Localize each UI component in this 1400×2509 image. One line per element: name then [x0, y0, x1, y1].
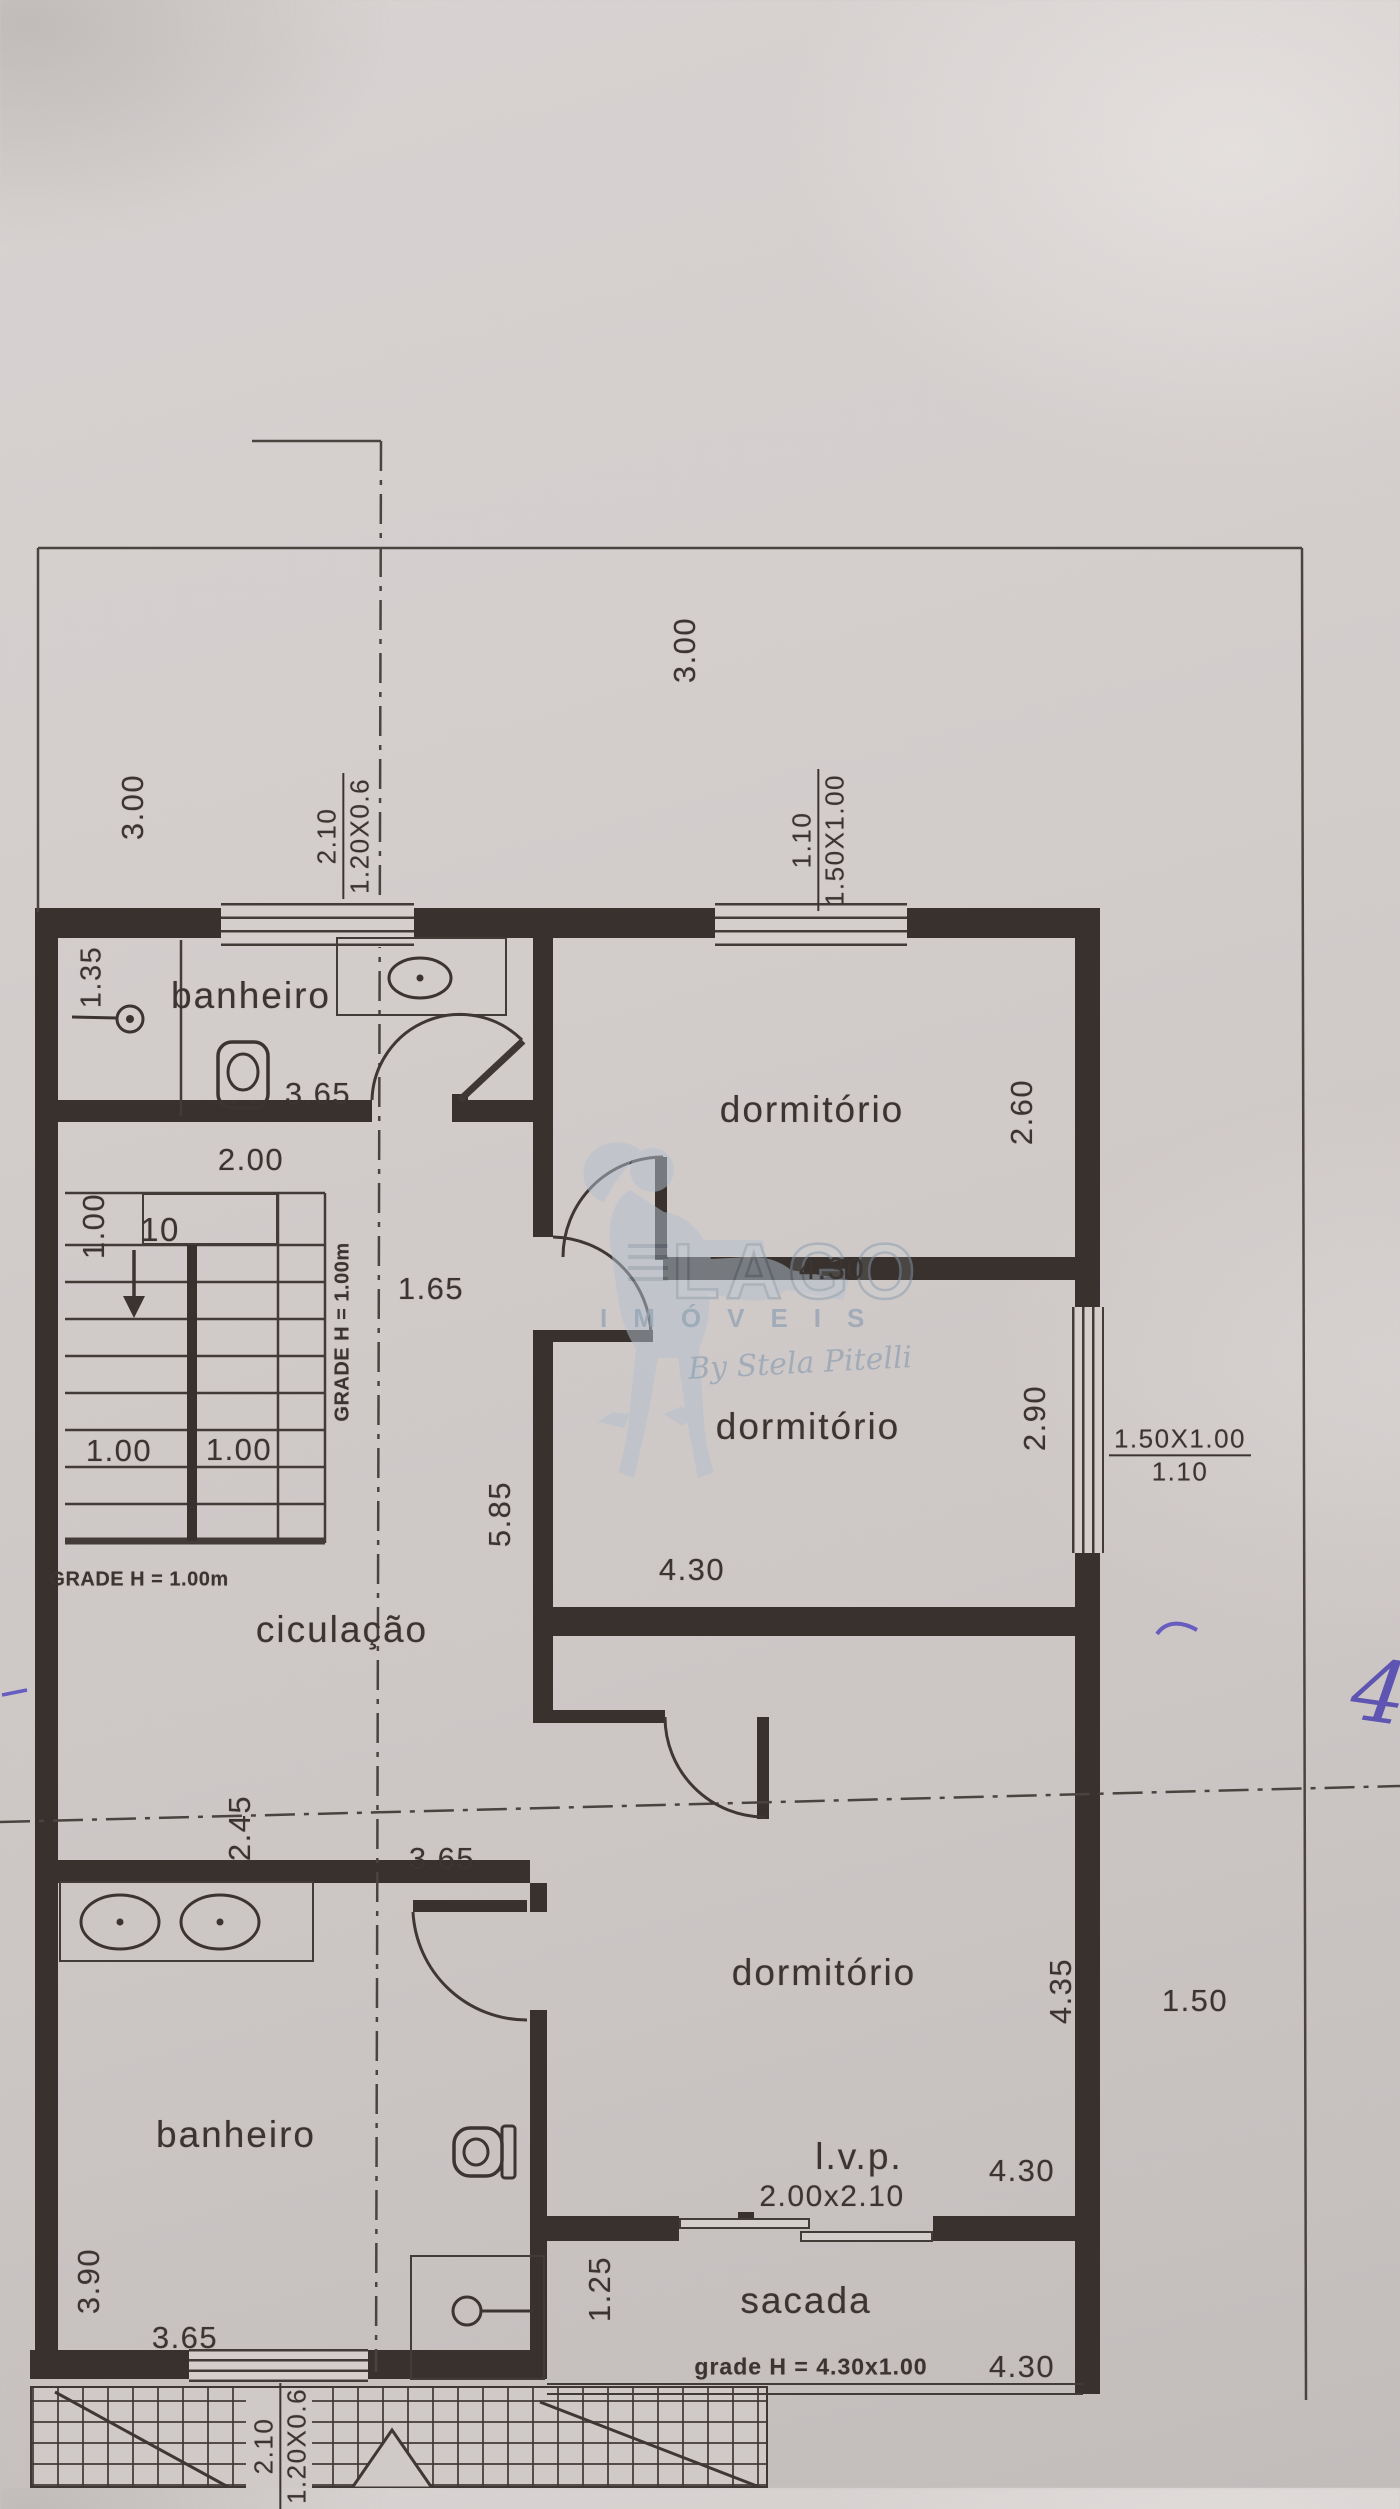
door-leaf-bathroom-bottom	[413, 1900, 527, 1912]
window-label-bathroom-top: 2.10 1.20X0.6	[311, 773, 374, 899]
room-label-bathroom-top: banheiro	[171, 975, 331, 1017]
section-line-vertical	[376, 441, 381, 2372]
dim-shower-width: 1.35	[76, 946, 109, 1008]
window-size: 1.50X1.00	[817, 769, 850, 911]
wall-stub-bedroom-bottom	[533, 1710, 665, 1723]
shower-stall-bottom	[410, 2255, 545, 2380]
door-arc-bedroom-top	[563, 1157, 663, 1257]
wall-lvp-2	[933, 2216, 1083, 2241]
wall-corridor-right-1	[533, 938, 553, 1237]
wall-top-1	[46, 908, 221, 938]
dim-lot-top: 3.00	[667, 617, 703, 683]
dim-bedroom-middle-width: 4.30	[659, 1552, 725, 1588]
wall-bathroom-bottom-right-2	[530, 2010, 547, 2216]
room-label-bathroom-bottom: banheiro	[156, 2114, 316, 2156]
window-sill: 2.10	[248, 2383, 279, 2509]
note-balcony-grade: grade H = 4.30x1.00	[694, 2354, 927, 2381]
window-size: 1.20X0.6	[279, 2383, 312, 2509]
window-label-bedroom-middle: 1.50X1.00 1.10	[1109, 1423, 1251, 1486]
dim-side-setback: 1.50	[1162, 1983, 1228, 2019]
sink-counter-bottom	[59, 1881, 314, 1962]
lot-boundary-right	[1302, 548, 1306, 2400]
wall-lvp-1	[540, 2216, 679, 2241]
wall-jog-vertical	[533, 1620, 553, 1723]
window-sill: 1.10	[1109, 1456, 1251, 1487]
window-size: 1.20X0.6	[342, 773, 375, 899]
room-label-circulation: ciculação	[256, 1609, 428, 1651]
dim-balcony-width: 4.30	[989, 2349, 1055, 2385]
dim-bathroom-bottom-height: 3.90	[71, 2248, 107, 2314]
door-arc-bathroom-top	[372, 1014, 522, 1100]
dim-stair-landing: 2.00	[218, 1142, 284, 1178]
dim-lot-left: 3.00	[115, 774, 151, 840]
room-label-lvp: l.v.p.	[815, 2136, 902, 2178]
window-size: 1.50X1.00	[1109, 1423, 1251, 1456]
wall-right-upper	[1075, 908, 1100, 1307]
toilet-top-icon	[218, 1042, 268, 1108]
section-line-horizontal	[0, 1786, 1400, 1822]
dim-stair-flight-right: 1.00	[206, 1432, 272, 1468]
window-sill: 2.10	[311, 773, 342, 899]
dim-lvp-width: 4.30	[989, 2153, 1055, 2189]
dim-bedroom-top-width: 4.30	[799, 1251, 865, 1287]
dim-bathroom-top-width: 3.65	[285, 1076, 351, 1112]
dim-stair-flight-left: 1.00	[86, 1433, 152, 1469]
window-label-bedroom-top: 1.10 1.50X1.00	[786, 769, 849, 911]
room-label-balcony: sacada	[740, 2280, 871, 2322]
wall-top-3	[907, 908, 1100, 938]
window-sill: 1.10	[786, 769, 817, 911]
handwritten-section-number: 4	[1345, 1640, 1400, 1747]
room-label-bedroom-middle: dormitório	[716, 1406, 901, 1448]
dim-bedroom-middle-height: 2.90	[1017, 1385, 1053, 1451]
door-leaf-bathroom-top	[460, 1041, 523, 1100]
door-arc-bathroom-bottom	[413, 1912, 527, 2020]
wall-between-bedrooms	[663, 1257, 1075, 1280]
sliding-door-panel-1	[679, 2218, 810, 2229]
dim-hall-length: 5.85	[482, 1481, 518, 1547]
toilet-bottom-icon	[454, 2126, 515, 2178]
wall-top-2	[414, 908, 715, 938]
room-label-bedroom-top: dormitório	[720, 1089, 905, 1131]
dim-circulation-width: 3.65	[409, 1841, 475, 1877]
dim-stair-width: 1.00	[76, 1193, 112, 1259]
dim-circulation-depth: 2.45	[222, 1795, 258, 1861]
note-stair-grade-horizontal: GRADE H = 1.00m	[49, 1569, 228, 1592]
stair-down-arrow	[123, 1250, 145, 1318]
floor-plan-page: LAGO IMÓVEIS By Stela Pitelli 3.00 3.00 …	[0, 0, 1400, 2488]
dim-balcony-depth: 1.25	[582, 2256, 618, 2322]
roof-hatch	[30, 2386, 768, 2488]
dim-hall-door: 1.65	[398, 1271, 464, 1307]
dim-bathroom-bottom-width: 3.65	[152, 2320, 218, 2356]
watermark-subtitle: IMÓVEIS	[600, 1303, 890, 1334]
dim-bedroom-top-height: 2.60	[1004, 1079, 1040, 1145]
wall-corridor-right-2	[533, 1330, 553, 1620]
door-leaf-bedroom-top	[655, 1157, 667, 1260]
room-label-bedroom-bottom: dormitório	[732, 1952, 917, 1994]
stair-count: 10	[140, 1211, 180, 1249]
watermark-script: By Stela Pitelli	[687, 1340, 913, 1387]
note-stair-grade-vertical: GRADE H = 1.00m	[332, 1242, 355, 1421]
wall-left	[35, 908, 58, 2379]
wall-bedroom-middle-south	[553, 1607, 1075, 1636]
note-lvp-opening: 2.00x2.10	[759, 2180, 904, 2214]
shower-head-top-icon	[72, 1006, 143, 1032]
door-leaf-bedroom-bottom	[757, 1717, 769, 1819]
window-label-bathroom-bottom: 2.10 1.20X0.6	[248, 2383, 311, 2509]
sliding-door-panel-2	[800, 2231, 933, 2242]
door-jamb-bathroom-top	[452, 1094, 468, 1122]
door-arc-bedroom-bottom	[665, 1717, 765, 1817]
dim-bedroom-bottom-height: 4.35	[1043, 1958, 1079, 2024]
sink-counter-top	[336, 937, 507, 1016]
window-bedroom-middle	[1072, 1307, 1104, 1553]
wall-bathroom-bottom-right-1	[530, 1883, 547, 1912]
